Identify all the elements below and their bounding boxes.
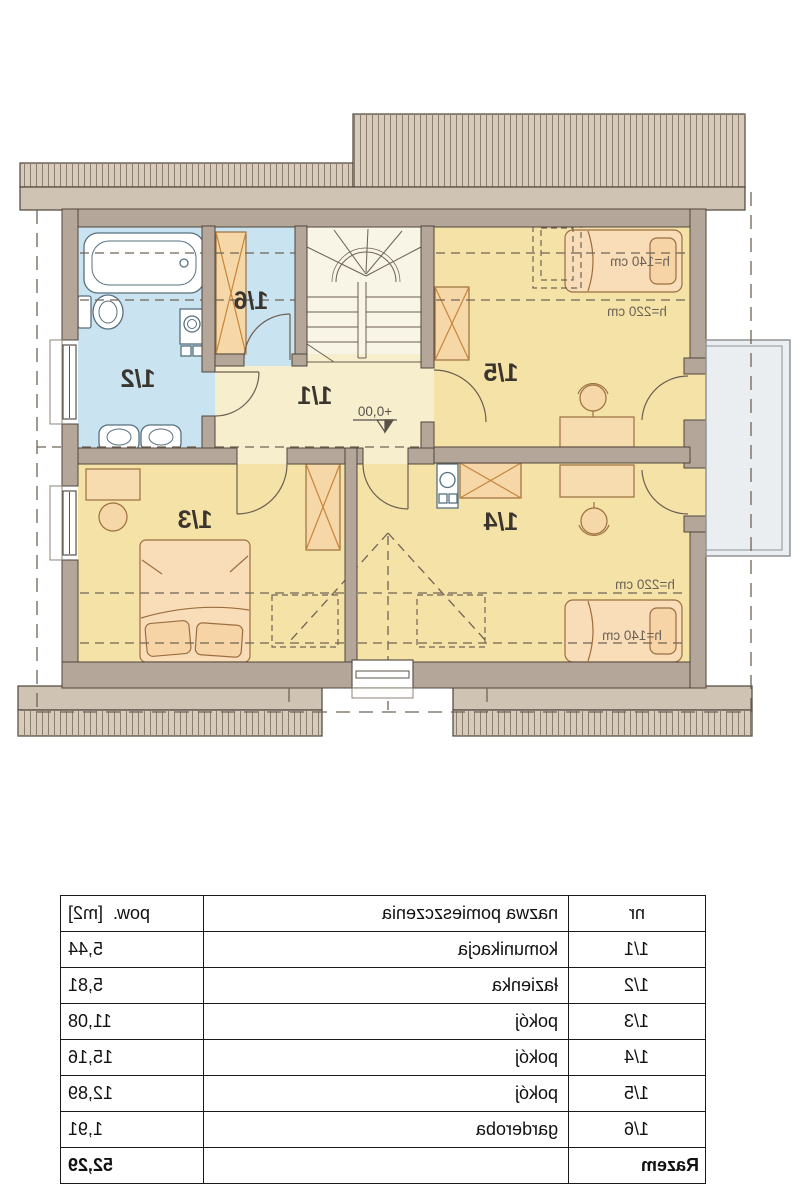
- table-row: 1,91 garderoba 1/6: [61, 1112, 706, 1148]
- room-label-1-3: 1/3: [178, 506, 213, 534]
- washbasin-room4: [437, 464, 458, 508]
- cell-area: 15,16: [68, 1047, 113, 1068]
- wardrobe-room5: [435, 287, 469, 360]
- total-area: 52,29: [68, 1155, 113, 1176]
- table-row: 15,16 pokój 1/4: [61, 1040, 706, 1076]
- table-row: 11,08 pokój 1/3: [61, 1004, 706, 1040]
- cell-name: łazienka: [492, 975, 558, 996]
- cell-area: 11,08: [68, 1011, 112, 1032]
- cell-nr: 1/2: [624, 975, 649, 996]
- desk-room3: [86, 469, 140, 500]
- cell-nr: 1/1: [624, 939, 649, 960]
- table-row: 5,44 komunikacja 1/1: [61, 932, 706, 968]
- wardrobe-room3: [306, 464, 340, 550]
- cell-name: pokój: [515, 1011, 558, 1032]
- stairwell-floor: [307, 227, 421, 363]
- room-label-1-1: 1/1: [298, 382, 333, 410]
- table-header-row: pow. [m2] nazwa pomieszczenia nr: [61, 896, 706, 932]
- height-label-140-room5: h=140 cm: [610, 254, 670, 269]
- height-label-140-room4: h=140 cm: [602, 628, 662, 643]
- cell-area: 5,44: [68, 939, 103, 960]
- cell-name: komunikacja: [458, 939, 558, 960]
- total-label: Razem: [641, 1155, 699, 1176]
- height-label-220-room5: h=220 cm: [607, 304, 667, 319]
- cell-name: garderoba: [476, 1119, 558, 1140]
- desk-room5: [560, 417, 634, 447]
- floor-plan-drawing: 1/2 1/6 1/1 1/5 1/4 1/3 h=140 cm h=220 c…: [0, 0, 800, 880]
- room-label-1-5: 1/5: [484, 359, 519, 387]
- cell-name: pokój: [515, 1083, 558, 1104]
- roof-band-top: [20, 114, 745, 210]
- cell-nr: 1/6: [624, 1119, 649, 1140]
- cell-nr: 1/3: [624, 1011, 649, 1032]
- bathtub: [84, 233, 204, 293]
- table-total-row: 52,29 Razem: [61, 1148, 706, 1184]
- header-nr: nr: [629, 903, 645, 924]
- table-row: 5,81 łazienka 1/2: [61, 968, 706, 1004]
- window-bottom-dormer: [352, 660, 413, 698]
- stool-room3: [99, 503, 127, 531]
- window-left-2: [50, 486, 76, 560]
- room-label-1-2: 1/2: [121, 365, 156, 393]
- wardrobe-room4: [460, 463, 521, 498]
- cell-nr: 1/5: [624, 1083, 649, 1104]
- cell-nr: 1/4: [624, 1047, 649, 1068]
- balcony: [706, 340, 790, 556]
- table-row: 12,89 pokój 1/5: [61, 1076, 706, 1112]
- cell-area: 1,91: [68, 1119, 103, 1140]
- cell-area: 5,81: [68, 975, 103, 996]
- room-label-1-4: 1/4: [484, 508, 519, 536]
- header-area: pow. [m2]: [68, 903, 150, 924]
- floor-plan-page: 1/2 1/6 1/1 1/5 1/4 1/3 h=140 cm h=220 c…: [0, 0, 800, 1191]
- room-label-1-6: 1/6: [234, 287, 269, 315]
- height-label-220-room4: h=220 cm: [615, 577, 675, 592]
- cell-area: 12,89: [68, 1083, 113, 1104]
- bed-room3: [140, 540, 250, 662]
- room-schedule-table: pow. [m2] nazwa pomieszczenia nr 5,44 ko…: [60, 895, 706, 1184]
- washing-machine: [180, 309, 205, 356]
- window-left-1: [50, 340, 76, 424]
- level-marker-label: +0,00: [358, 404, 392, 419]
- cell-name: pokój: [515, 1047, 558, 1068]
- desk-room4: [560, 465, 634, 497]
- header-name: nazwa pomieszczenia: [382, 903, 558, 924]
